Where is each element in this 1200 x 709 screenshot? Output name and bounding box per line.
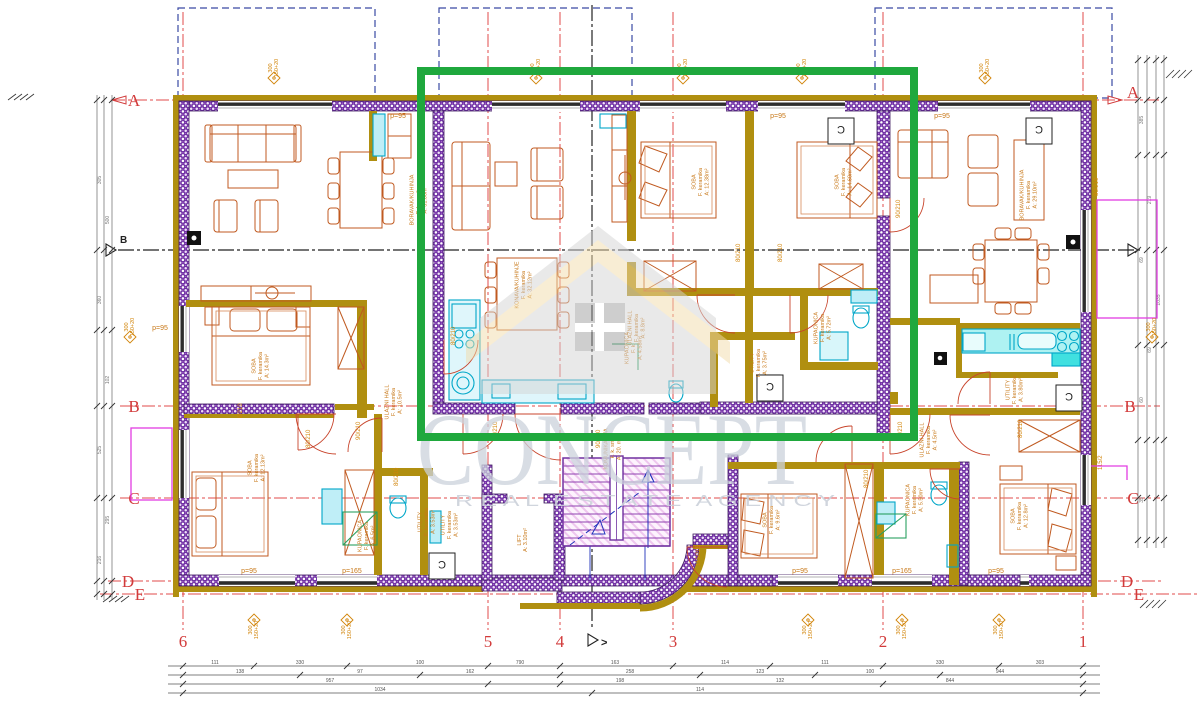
svg-text:80/210: 80/210 — [394, 467, 400, 486]
svg-text:SOBA: SOBA — [835, 174, 841, 190]
svg-text:216: 216 — [97, 556, 103, 565]
svg-text:p=95: p=95 — [390, 113, 406, 120]
svg-text:ULAZNI HALL: ULAZNI HALL — [385, 385, 391, 420]
svg-text:A: 14.3m²: A: 14.3m² — [264, 354, 270, 378]
svg-text:198: 198 — [616, 678, 625, 684]
svg-text:C: C — [1065, 390, 1073, 402]
svg-text:A: 3.53m²: A: 3.53m² — [453, 513, 459, 537]
svg-text:115/2: 115/2 — [1098, 455, 1104, 470]
svg-text:D: D — [122, 572, 134, 591]
svg-text:35: 35 — [1139, 497, 1145, 503]
svg-text:6: 6 — [179, 632, 188, 651]
svg-text:258: 258 — [626, 669, 635, 675]
svg-text:4: 4 — [556, 632, 565, 651]
svg-text:B: B — [1124, 397, 1135, 416]
svg-text:F. keramika: F. keramika — [1012, 375, 1018, 404]
svg-text:162: 162 — [466, 669, 475, 675]
svg-text:944: 944 — [996, 669, 1005, 675]
svg-text:330: 330 — [296, 660, 305, 666]
svg-text:p=95: p=95 — [770, 113, 786, 120]
svg-text:SOBA: SOBA — [763, 512, 769, 528]
svg-text:E: E — [1134, 585, 1144, 604]
svg-text:A: 3.10m²: A: 3.10m² — [523, 528, 529, 552]
svg-text:SOBA: SOBA — [248, 460, 254, 476]
svg-text:150+20: 150+20 — [808, 621, 814, 640]
svg-text:E: E — [135, 585, 145, 604]
svg-text:R E A L E S T A T E A G E N: R E A L E S T A T E A G E N C Y — [455, 493, 836, 510]
svg-text:303: 303 — [1036, 660, 1045, 666]
svg-text:KUPAONICA: KUPAONICA — [814, 312, 820, 344]
svg-text:102: 102 — [105, 376, 111, 385]
svg-text:F. keramika: F. keramika — [1017, 501, 1023, 530]
svg-text:500: 500 — [105, 216, 111, 225]
svg-text:F. keramika: F. keramika — [698, 167, 704, 196]
svg-text:UTILITY: UTILITY — [441, 514, 447, 535]
svg-text:69: 69 — [1139, 257, 1145, 263]
svg-text:A: 10.5m²: A: 10.5m² — [397, 390, 403, 414]
svg-text:ULAZNI HALL: ULAZNI HALL — [920, 423, 926, 458]
svg-text:UTILITY: UTILITY — [750, 352, 756, 373]
svg-text:138: 138 — [236, 669, 245, 675]
svg-text:80/210: 80/210 — [864, 469, 870, 488]
svg-text:A: 5.50m²: A: 5.50m² — [918, 488, 924, 512]
svg-text:150+20: 150+20 — [254, 621, 260, 640]
svg-text:A: 12.13m²: A: 12.13m² — [260, 454, 266, 481]
svg-text:KUPAONICA: KUPAONICA — [358, 520, 364, 552]
svg-text:5: 5 — [484, 632, 493, 651]
svg-text:p=165: p=165 — [342, 568, 362, 575]
svg-text:111: 111 — [821, 660, 829, 666]
svg-text:UTILITY: UTILITY — [1006, 379, 1012, 400]
svg-text:>: > — [601, 637, 607, 649]
svg-text:C: C — [128, 489, 139, 508]
svg-text:150+20: 150+20 — [274, 59, 280, 78]
svg-text:A: 12.38m²: A: 12.38m² — [704, 168, 710, 195]
svg-text:p=95: p=95 — [152, 325, 168, 332]
svg-text:330: 330 — [936, 660, 945, 666]
svg-text:KUPAONICA: KUPAONICA — [906, 484, 912, 516]
svg-text:C: C — [438, 558, 446, 570]
svg-text:F. keramika: F. keramika — [912, 485, 918, 514]
svg-text:SOBA: SOBA — [1011, 508, 1017, 524]
svg-text:UTILITY: UTILITY — [418, 511, 424, 532]
svg-text:A: 3.75m²: A: 3.75m² — [762, 351, 768, 375]
svg-text:1: 1 — [1079, 632, 1088, 651]
svg-text:2: 2 — [879, 632, 888, 651]
svg-text:C: C — [837, 123, 845, 135]
svg-text:F. keramika: F. keramika — [364, 521, 370, 550]
svg-text:LIFT: LIFT — [517, 534, 523, 546]
svg-text:80/210: 80/210 — [306, 429, 312, 448]
svg-text:90/210: 90/210 — [356, 421, 362, 440]
svg-text:F. keramika: F. keramika — [254, 453, 260, 482]
svg-text:F. keramika: F. keramika — [391, 387, 397, 416]
svg-text:844: 844 — [946, 678, 955, 684]
svg-text:957: 957 — [326, 678, 335, 684]
svg-text:F. keramika: F. keramika — [841, 167, 847, 196]
svg-text:CONCEPT: CONCEPT — [417, 393, 807, 507]
svg-text:1034: 1034 — [374, 687, 385, 693]
svg-text:BORAVAK/KUHINJA: BORAVAK/KUHINJA — [1020, 169, 1026, 220]
svg-text:97: 97 — [357, 669, 363, 675]
svg-text:F. keramika: F. keramika — [1026, 180, 1032, 209]
svg-text:B: B — [128, 397, 139, 416]
svg-text:A: 3.80m²: A: 3.80m² — [1018, 378, 1024, 402]
svg-text:A: 29.10m²: A: 29.10m² — [1032, 181, 1038, 208]
svg-text:305: 305 — [97, 176, 103, 185]
svg-text:A: 12.8m²: A: 12.8m² — [1023, 504, 1029, 528]
svg-text:A: 3.53m²: A: 3.53m² — [430, 510, 436, 534]
svg-text:BORAVAK/KUHINJA: BORAVAK/KUHINJA — [410, 174, 416, 225]
svg-text:D: D — [1121, 572, 1133, 591]
svg-text:114: 114 — [696, 687, 704, 693]
svg-text:150+20: 150+20 — [985, 59, 991, 78]
svg-text:100: 100 — [416, 660, 425, 666]
svg-text:80/210: 80/210 — [451, 326, 457, 345]
svg-text:A: A — [128, 91, 141, 110]
svg-text:F. keramika: F. keramika — [424, 507, 430, 536]
svg-text:p=95: p=95 — [988, 568, 1004, 575]
svg-text:F. keramika: F. keramika — [258, 351, 264, 380]
svg-text:790: 790 — [516, 660, 525, 666]
svg-text:100: 100 — [866, 669, 875, 675]
svg-text:80/210: 80/210 — [1018, 419, 1024, 438]
svg-text:F. keramika: F. keramika — [447, 510, 453, 539]
svg-text:150+20: 150+20 — [1152, 318, 1158, 337]
svg-text:385: 385 — [1139, 116, 1145, 125]
svg-text:150+20: 150+20 — [347, 621, 353, 640]
svg-text:A: 6.5m²: A: 6.5m² — [370, 525, 376, 546]
svg-text:C: C — [1035, 123, 1043, 135]
svg-text:p=95: p=95 — [934, 113, 950, 120]
svg-text:163: 163 — [611, 660, 620, 666]
svg-text:90/210: 90/210 — [896, 199, 902, 218]
svg-text:80/210: 80/210 — [1094, 177, 1100, 196]
svg-text:A: 9.6m²: A: 9.6m² — [775, 509, 781, 530]
svg-text:F. keramika: F. keramika — [756, 348, 762, 377]
svg-text:80/210: 80/210 — [778, 243, 784, 262]
svg-text:360: 360 — [97, 296, 103, 305]
svg-text:SOBA: SOBA — [252, 358, 258, 374]
svg-text:132: 132 — [776, 678, 785, 684]
svg-text:p=165: p=165 — [892, 568, 912, 575]
svg-text:150+20: 150+20 — [999, 621, 1005, 640]
svg-text:p=95: p=95 — [792, 568, 808, 575]
svg-text:150+20: 150+20 — [130, 318, 136, 337]
svg-text:123: 123 — [756, 669, 765, 675]
svg-text:80/210: 80/210 — [736, 243, 742, 262]
svg-text:60: 60 — [1139, 397, 1145, 403]
svg-text:Ø210: Ø210 — [238, 403, 244, 418]
svg-text:A: 5.72m²: A: 5.72m² — [826, 316, 832, 340]
svg-text:114: 114 — [721, 660, 729, 666]
svg-text:B: B — [120, 235, 127, 246]
svg-text:F. keramika: F. keramika — [926, 425, 932, 454]
svg-text:115/205: 115/205 — [696, 544, 702, 566]
svg-text:F. keramika: F. keramika — [820, 313, 826, 342]
svg-text:p=95: p=95 — [241, 568, 257, 575]
svg-text:A: 14.60m²: A: 14.60m² — [847, 168, 853, 195]
svg-text:69: 69 — [1147, 347, 1153, 353]
svg-text:295: 295 — [105, 516, 111, 525]
svg-text:A: 4.5m²: A: 4.5m² — [932, 429, 938, 450]
svg-text:111: 111 — [211, 660, 219, 666]
svg-text:SOBA: SOBA — [692, 174, 698, 190]
svg-text:525: 525 — [97, 446, 103, 455]
svg-text:150+20: 150+20 — [902, 621, 908, 640]
svg-text:3: 3 — [669, 632, 678, 651]
svg-text:C: C — [766, 380, 774, 392]
